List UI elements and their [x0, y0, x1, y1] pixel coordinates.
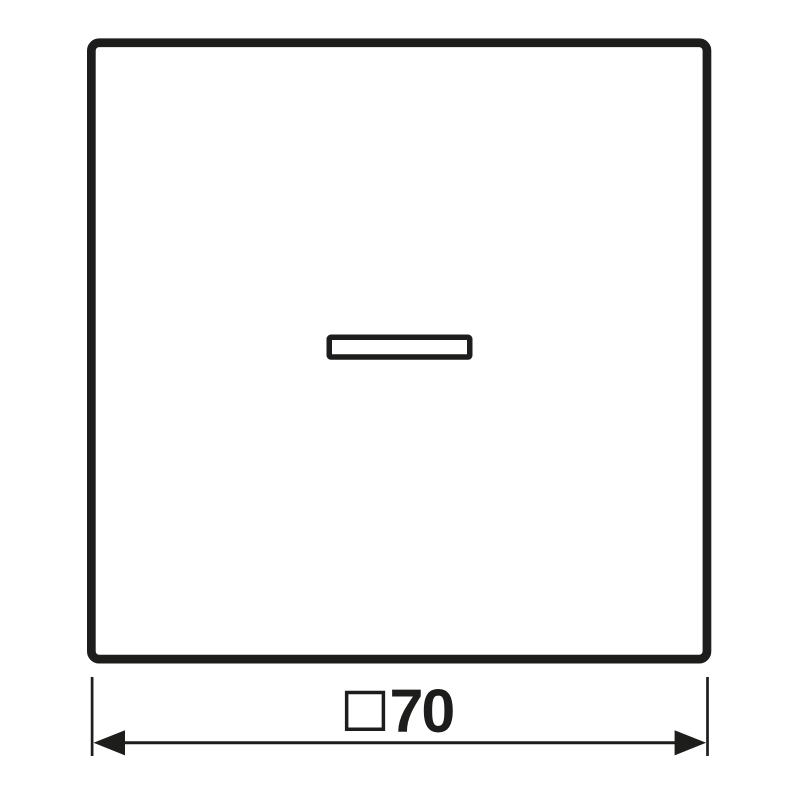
svg-text:70: 70 — [390, 677, 454, 745]
